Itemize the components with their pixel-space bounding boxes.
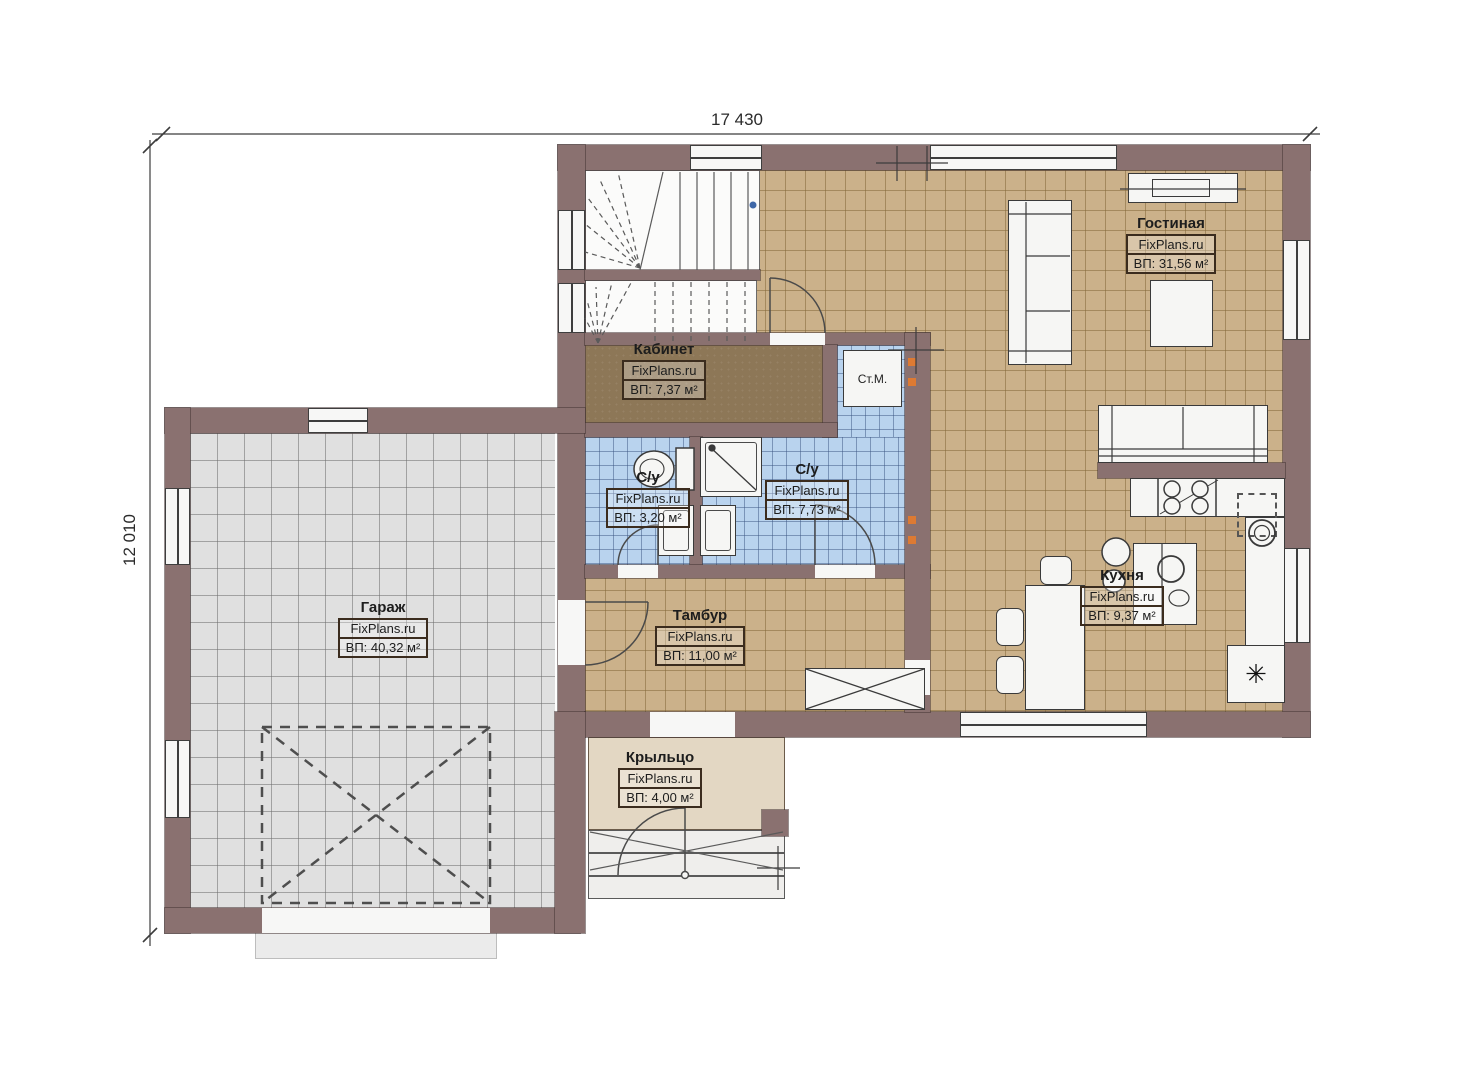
dimension-width-label: 17 430	[687, 110, 787, 130]
stove-burners	[1158, 479, 1218, 516]
porch-step-diagonals	[590, 832, 783, 870]
brand-link: FixPlans.ru	[1082, 588, 1161, 605]
room-title: Тамбур	[673, 608, 727, 624]
room-label-vestibule: Тамбур FixPlans.ru ВП: 11,00 м²	[625, 608, 775, 666]
room-label-office: Кабинет FixPlans.ru ВП: 7,37 м²	[589, 342, 739, 400]
brand-link: FixPlans.ru	[620, 770, 699, 787]
brand-link: FixPlans.ru	[608, 490, 687, 507]
room-area: ВП: 11,00 м²	[657, 645, 743, 664]
room-title: Гараж	[361, 600, 406, 616]
room-label-bath-big: С/у FixPlans.ru ВП: 7,73 м²	[732, 462, 882, 520]
room-area: ВП: 7,73 м²	[767, 499, 846, 518]
room-title: Гостиная	[1137, 216, 1205, 232]
brand-link: FixPlans.ru	[657, 628, 743, 645]
wardrobe-cross	[806, 669, 924, 709]
room-label-garage: Гараж FixPlans.ru ВП: 40,32 м²	[308, 600, 458, 658]
stair-treads	[585, 172, 757, 343]
room-title: Кабинет	[634, 342, 695, 358]
room-title: С/у	[636, 470, 659, 486]
stair-direction-marker	[750, 202, 757, 209]
room-area: ВП: 3,20 м²	[608, 507, 687, 526]
brand-link: FixPlans.ru	[1128, 236, 1215, 253]
brand-link: FixPlans.ru	[340, 620, 427, 637]
room-label-bath-small: С/у FixPlans.ru ВП: 3,20 м²	[573, 470, 723, 528]
room-area: ВП: 9,37 м²	[1082, 605, 1161, 624]
floor-plan-canvas: ✳ Ст.М.	[0, 0, 1473, 1080]
room-area: ВП: 7,37 м²	[624, 379, 703, 398]
room-title: Крыльцо	[626, 750, 694, 766]
plan-linework	[0, 0, 1473, 1080]
brand-link: FixPlans.ru	[767, 482, 846, 499]
brand-link: FixPlans.ru	[624, 362, 703, 379]
dimension-height-label: 12 010	[120, 490, 140, 590]
room-area: ВП: 4,00 м²	[620, 787, 699, 806]
room-title: Кухня	[1100, 568, 1144, 584]
parking-space-outline	[262, 727, 490, 903]
room-title: С/у	[795, 462, 818, 478]
room-area: ВП: 31,56 м²	[1128, 253, 1215, 272]
room-label-kitchen: Кухня FixPlans.ru ВП: 9,37 м²	[1047, 568, 1197, 626]
room-label-living: Гостиная FixPlans.ru ВП: 31,56 м²	[1096, 216, 1246, 274]
room-area: ВП: 40,32 м²	[340, 637, 427, 656]
room-label-porch: Крыльцо FixPlans.ru ВП: 4,00 м²	[585, 750, 735, 808]
